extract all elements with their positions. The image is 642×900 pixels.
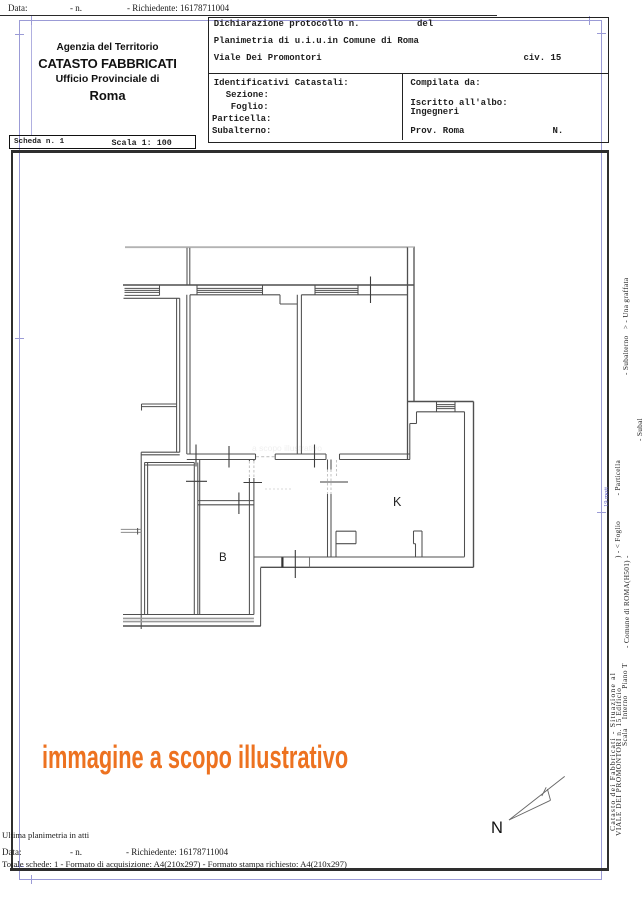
svg-text:B: B: [219, 552, 227, 564]
svg-text:K: K: [393, 495, 402, 509]
svg-text:a scopo illustrativo: a scopo illustrativo: [252, 443, 322, 453]
svg-text:N: N: [491, 819, 503, 837]
